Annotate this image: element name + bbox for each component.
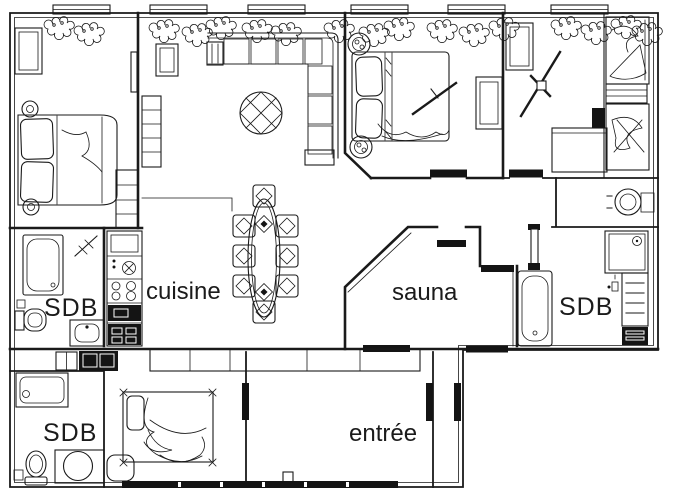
shower-symbol xyxy=(16,373,68,407)
bathroom-left xyxy=(15,235,104,346)
round-rug-symbol xyxy=(240,92,282,134)
cooktop-symbol xyxy=(112,282,136,301)
label-sauna: sauna xyxy=(392,279,458,306)
valve-icon xyxy=(608,275,619,291)
cross-mark-icon xyxy=(521,52,560,116)
label-cuisine: cuisine xyxy=(146,278,221,305)
entrance-door-icon xyxy=(454,383,461,421)
sauna-sliding-door-icon xyxy=(466,346,508,353)
dining-chairs xyxy=(233,185,298,323)
washer-dryer-symbol xyxy=(79,351,118,371)
glazed-wall-symbol xyxy=(122,481,398,488)
washbasin-symbol xyxy=(70,320,104,346)
towel-radiator-symbol xyxy=(622,273,648,345)
toilet-symbol xyxy=(14,451,47,485)
desk-symbol xyxy=(506,23,533,70)
fridge-symbol xyxy=(111,235,138,252)
desk-symbol xyxy=(552,128,607,172)
sdb-right-door-icon xyxy=(481,265,514,272)
bedroom-top-left xyxy=(15,28,138,228)
entree-details xyxy=(122,472,398,488)
side-table-symbol xyxy=(156,44,178,76)
bedroom-top-right xyxy=(506,17,649,172)
washroom xyxy=(607,189,654,215)
label-sdb-bottom: SDB xyxy=(43,419,97,447)
label-entree: entrée xyxy=(349,420,417,447)
dishwasher-symbol xyxy=(108,324,141,345)
sdb-left-door-icon xyxy=(75,236,97,256)
dresser-symbol xyxy=(476,77,502,129)
shelf-unit-symbol xyxy=(142,96,161,167)
label-sdb-left: SDB xyxy=(44,294,98,322)
double-bed-symbol xyxy=(120,389,216,466)
floor-plan-drawing: SDB cuisine sauna SDB SDB entrée xyxy=(0,0,700,500)
bedroom1-door-icon xyxy=(131,52,137,92)
double-bed-symbol xyxy=(352,52,449,141)
vanity-counter-symbol xyxy=(55,450,104,483)
kitchen-sink-symbol xyxy=(113,260,136,275)
floor-marker-icon xyxy=(283,472,293,482)
bedroom4-door-icon xyxy=(242,383,249,420)
closet-row xyxy=(56,349,420,371)
oven-symbol xyxy=(108,305,141,321)
bedroom-top-middle xyxy=(348,33,502,158)
floor-plan: SDB cuisine sauna SDB SDB entrée xyxy=(0,0,700,500)
single-bed-symbol xyxy=(606,104,649,170)
label-sdb-right: SDB xyxy=(559,293,613,321)
entree-door-icon xyxy=(426,383,433,421)
shower-symbol xyxy=(605,231,648,273)
kitchen-counter xyxy=(107,231,142,346)
ottoman-symbol xyxy=(107,455,134,481)
sdb-right-door-leaf-icon xyxy=(528,224,540,270)
nightstand-symbol xyxy=(606,84,647,103)
bathtub-symbol xyxy=(518,271,552,346)
bathtub-symbol xyxy=(23,235,63,295)
bedroom2-door-icon xyxy=(430,170,467,178)
sauna-door-icon xyxy=(437,240,466,247)
double-bed-symbol xyxy=(18,115,117,205)
bedroom-bottom xyxy=(107,389,216,481)
desk-symbol xyxy=(15,28,42,74)
sofa-symbol xyxy=(207,33,338,165)
door-leaves xyxy=(75,52,543,421)
bedroom3-door-icon xyxy=(509,170,543,178)
pedestal-basin-symbol xyxy=(607,189,654,215)
toilet-symbol xyxy=(15,300,46,331)
tv-symbol xyxy=(592,108,605,128)
dining-table-symbol xyxy=(248,199,280,317)
wardrobe-symbol xyxy=(116,170,138,228)
